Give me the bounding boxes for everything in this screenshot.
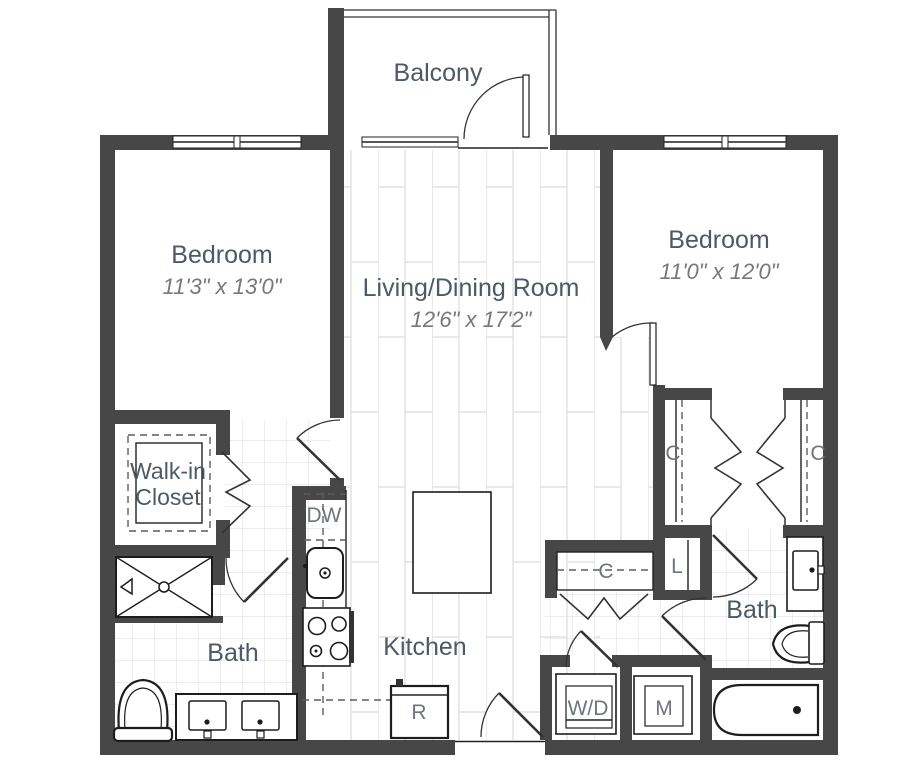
hall-closet-label: C [598,560,613,583]
closet-right-label: C [810,442,825,465]
vanity-left [176,694,297,740]
bedroom-left-label: Bedroom [171,241,272,269]
refrigerator-label: R [411,701,426,724]
bathtub [714,685,818,735]
kitchen-island [413,492,491,593]
oven-handle [349,611,354,663]
balcony-window [362,137,458,147]
bath-right-label: Bath [726,596,777,624]
shower [116,557,212,617]
floor-plan: Balcony Bedroom 11'3" x 13'0" Living/Din… [0,0,921,768]
tub-ledge [705,668,823,680]
walkin-closet-label-line1: Walk-in [130,458,206,484]
closet-left-label: C [665,442,680,465]
plank-floor-extension [600,337,653,540]
dishwasher-label: DW [307,504,342,527]
bedroom-right-window [664,136,786,148]
balcony-label: Balcony [394,59,483,87]
tub-drain [793,706,801,714]
bedroom-left-dimensions: 11'3" x 13'0" [162,274,282,299]
kitchen-sink [303,548,343,598]
kitchen-label: Kitchen [383,633,466,661]
floor-plan-page: Balcony Bedroom 11'3" x 13'0" Living/Din… [0,0,921,768]
closet-right-bifold-door [757,418,785,518]
living-dining-dimensions: 12'6" x 17'2" [411,307,533,332]
bedroom-right-label: Bedroom [668,226,769,254]
vanity-right [787,537,824,611]
living-dining-label: Living/Dining Room [363,274,580,302]
mechanical-label: M [655,697,673,720]
bath-left-label: Bath [207,639,258,667]
bedroom-right-dimensions: 11'0" x 12'0" [659,259,779,284]
closet-left-bifold-door [711,418,741,518]
balcony-wall [328,8,344,135]
bedroom-left-window [173,136,301,148]
washer-dryer-label: W/D [568,697,609,720]
entry-opening [455,740,545,755]
linen-closet-label: L [671,555,683,578]
walkin-closet-label-line2: Closet [135,484,201,510]
stove [303,608,354,666]
